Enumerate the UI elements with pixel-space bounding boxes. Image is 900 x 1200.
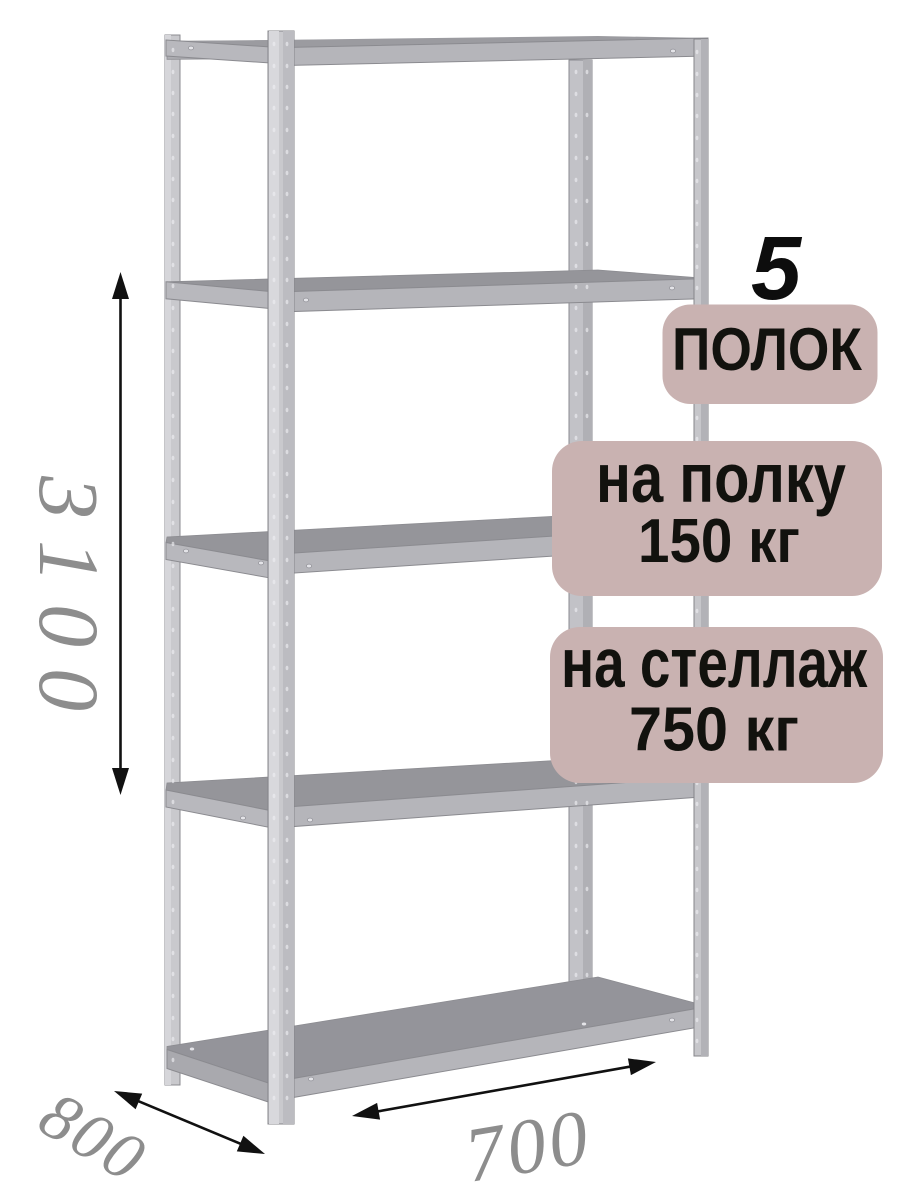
svg-text:на полку: на полку bbox=[596, 439, 846, 517]
svg-text:750 кг: 750 кг bbox=[629, 696, 799, 765]
svg-text:3100: 3100 bbox=[21, 475, 117, 732]
svg-text:ПОЛОК: ПОЛОК bbox=[672, 316, 862, 383]
svg-text:150 кг: 150 кг bbox=[638, 507, 800, 576]
svg-text:на стеллаж: на стеллаж bbox=[561, 624, 868, 702]
svg-text:5: 5 bbox=[751, 219, 803, 319]
